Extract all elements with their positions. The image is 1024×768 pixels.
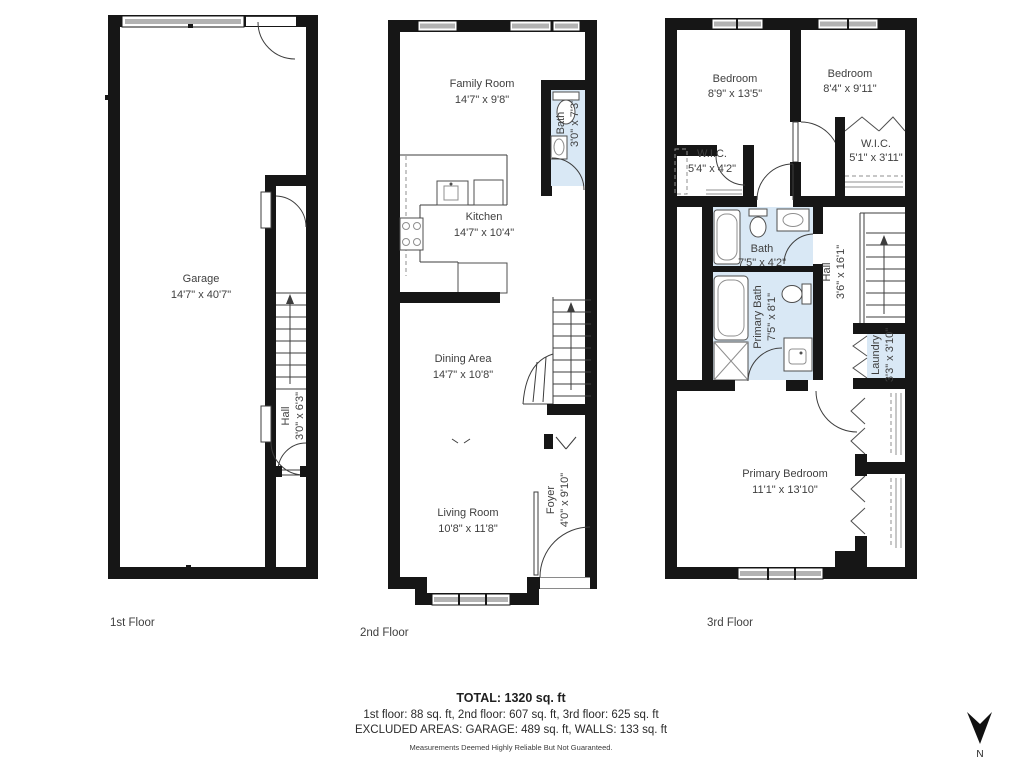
shower-icon: [714, 342, 748, 380]
north-compass: N: [967, 712, 992, 760]
wall-tick: [105, 95, 110, 100]
first-floor-label: 1st Floor: [110, 617, 155, 629]
wall-stub: [544, 434, 553, 449]
laundry-label: Laundry: [870, 335, 882, 375]
wall-tick: [312, 95, 317, 100]
second-floor-label: 2nd Floor: [360, 627, 409, 639]
family-room-dims: 14'7" x 9'8": [455, 94, 509, 106]
hall1-dims: 3'0" x 6'3": [294, 392, 306, 440]
hall-wall: [265, 175, 276, 567]
primary-bedroom-label: Primary Bedroom: [742, 468, 828, 480]
wic1-label: W.I.C.: [697, 148, 727, 160]
first-floor-plan: Garage 14'7" x 40'7" Hall 3'0" x 6'3" 1s…: [105, 16, 318, 629]
dining-dims: 14'7" x 10'8": [433, 369, 493, 381]
kitchen-dining-wall: [388, 292, 500, 303]
bedroom2-label: Bedroom: [828, 68, 873, 80]
toilet-icon: [802, 284, 811, 304]
wic2-dims: 5'1" x 3'11": [849, 152, 902, 164]
living-dims: 10'8" x 11'8": [438, 523, 498, 535]
third-floor-label: 3rd Floor: [707, 617, 753, 629]
bedroom2-dims: 8'4" x 9'11": [823, 83, 876, 95]
floor-areas-text: 1st floor: 88 sq. ft, 2nd floor: 607 sq.…: [363, 709, 659, 721]
bedroom1-dims: 8'9" x 13'5": [708, 88, 762, 100]
hall-top-wall: [793, 196, 911, 207]
window: [738, 567, 823, 580]
kitchen-dims: 14'7" x 10'4": [454, 227, 514, 239]
third-floor-plan: Bedroom 8'9" x 13'5" Bedroom 8'4" x 9'11…: [665, 18, 911, 629]
sink-icon: [777, 209, 809, 231]
kitchen-label: Kitchen: [466, 211, 503, 223]
hall-top-wall: [265, 175, 318, 186]
toilet-icon: [553, 92, 579, 100]
second-floor-plan: Family Room 14'7" x 9'8" Bath 3'0" x 7'3…: [360, 21, 597, 639]
bedroom-divider-wall: [790, 18, 801, 122]
hall3-dims: 3'6" x 16'1": [835, 245, 847, 299]
bath2-label: Bath: [555, 112, 567, 135]
bedroom-divider-wall: [790, 162, 801, 196]
refrigerator-icon: [474, 180, 503, 205]
north-label: N: [976, 749, 983, 760]
stove-icon: [400, 218, 423, 250]
garage-label: Garage: [183, 273, 220, 285]
toilet-icon: [749, 209, 767, 216]
stair-wall: [547, 404, 591, 415]
garage-door: [122, 16, 244, 28]
vanity-sink-icon: [784, 338, 812, 371]
wic1-dims: 5'4" x 4'2": [688, 163, 736, 175]
bath3-dims: 7'5" x 4'2": [738, 257, 786, 269]
primary-bath-dims: 7'5" x 8'1": [766, 293, 778, 341]
hall3-label: Hall: [821, 263, 833, 282]
foyer-label: Foyer: [545, 486, 557, 514]
kitchen-island-sink-icon: [437, 181, 468, 205]
primary-bedroom-dims: 11'1" x 13'10": [752, 484, 818, 496]
bedroom-top-wall: [665, 380, 735, 391]
wic2-label: W.I.C.: [861, 138, 891, 150]
laundry-room: [853, 334, 911, 389]
bay-window: [432, 593, 510, 605]
laundry-dims: 3'3" x 3'10": [884, 328, 896, 382]
primary-bath-label: Primary Bath: [752, 285, 764, 349]
garage-dims: 14'7" x 40'7": [171, 289, 231, 301]
stair-wall: [853, 323, 911, 334]
hall1-label: Hall: [280, 407, 292, 426]
bedroom-top-wall: [786, 380, 808, 391]
total-area-text: TOTAL: 1320 sq. ft: [456, 691, 566, 705]
foyer-dims: 4'0" x 9'10": [559, 473, 571, 527]
summary-block: TOTAL: 1320 sq. ft 1st floor: 88 sq. ft,…: [355, 691, 668, 752]
dining-label: Dining Area: [435, 353, 493, 365]
bedroom1-label: Bedroom: [713, 73, 758, 85]
wall-tick: [186, 565, 191, 570]
disclaimer-text: Measurements Deemed Highly Reliable But …: [409, 743, 612, 752]
bath2-dims: 3'0" x 7'3": [569, 99, 581, 147]
floor-plan-canvas: Garage 14'7" x 40'7" Hall 3'0" x 6'3" 1s…: [0, 0, 1024, 768]
family-room-label: Family Room: [450, 78, 515, 90]
living-label: Living Room: [437, 507, 498, 519]
excluded-areas-text: EXCLUDED AREAS: GARAGE: 489 sq. ft, WALL…: [355, 724, 668, 736]
north-arrow-icon: [967, 712, 992, 744]
bath3-label: Bath: [751, 243, 774, 255]
